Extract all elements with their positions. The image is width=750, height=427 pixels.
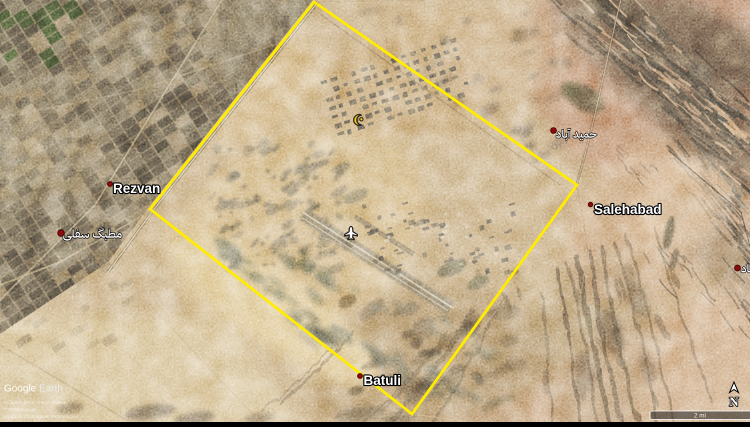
svg-text:Salehabad: Salehabad (594, 202, 662, 217)
svg-text:Rezvan: Rezvan (113, 181, 160, 196)
svg-text:2 mi: 2 mi (694, 412, 706, 419)
svg-text:Google Earth: Google Earth (4, 384, 63, 395)
svg-text:N: N (729, 394, 739, 409)
svg-text:Image © 2019 Maxar Technologie: Image © 2019 Maxar Technologies (4, 413, 79, 420)
svg-text:Batuli: Batuli (364, 373, 402, 388)
svg-text:© 2019 Google: © 2019 Google (4, 406, 37, 413)
svg-text:Image © 2019 CNES / Airbus: Image © 2019 CNES / Airbus (4, 399, 67, 406)
